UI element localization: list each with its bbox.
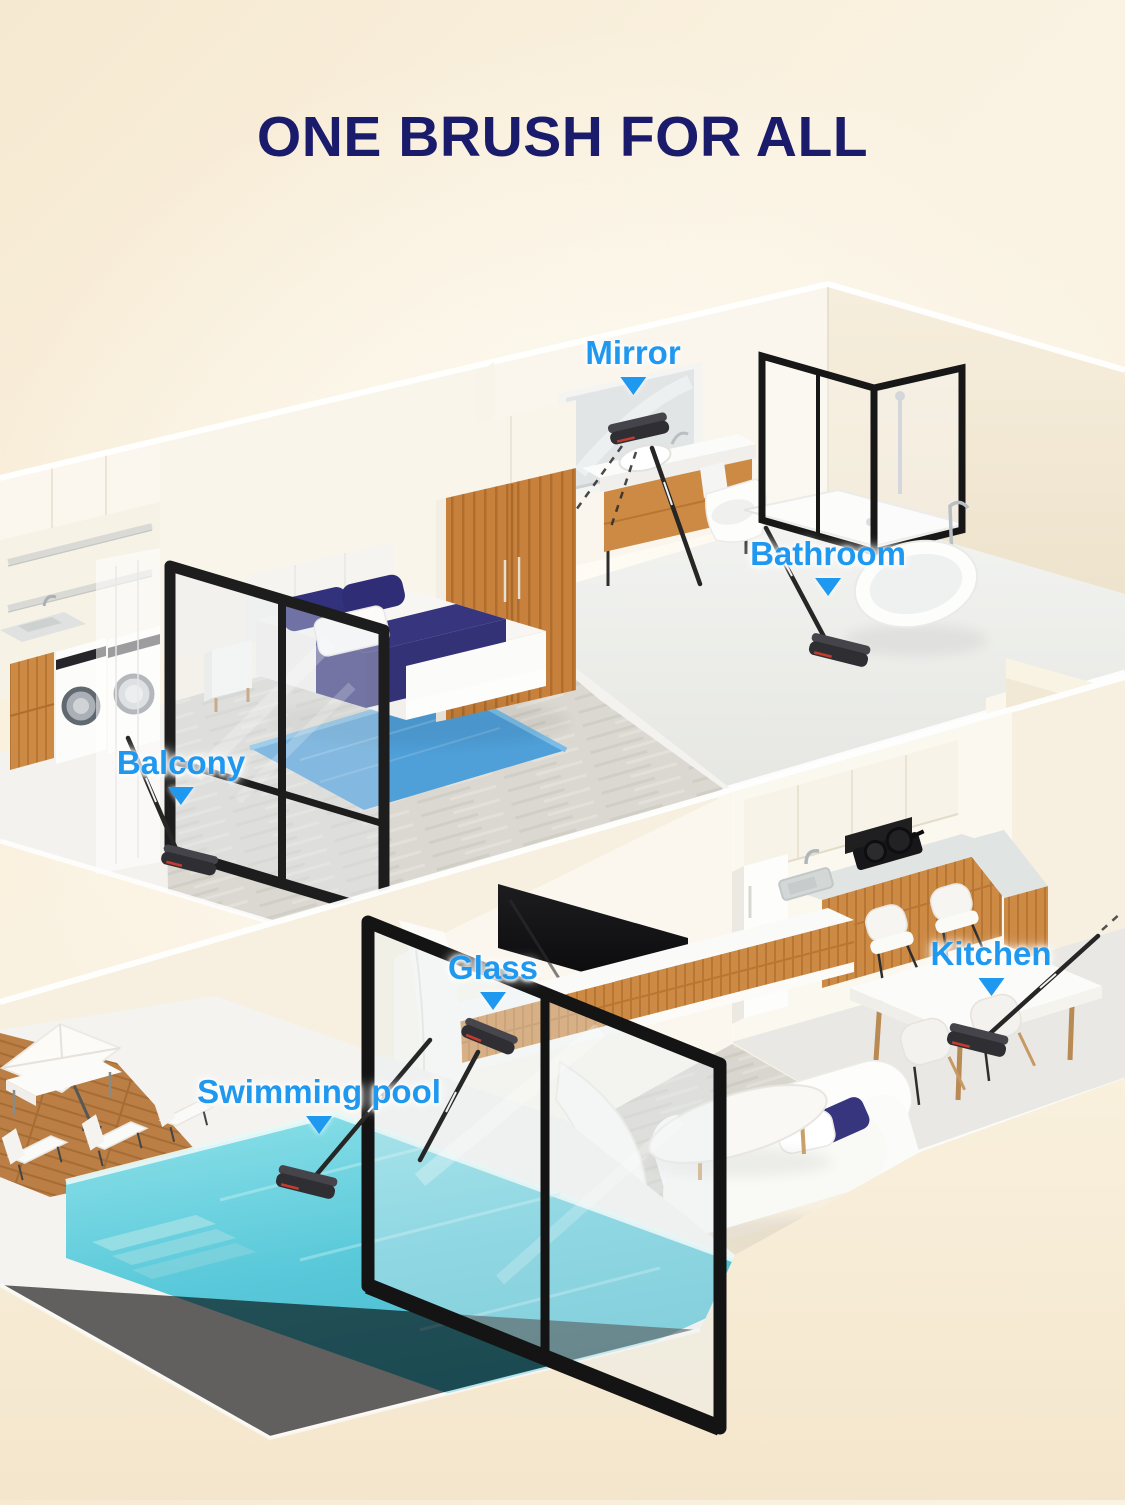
bedroom-curtain <box>96 548 160 874</box>
callout-balcony: Balcony <box>117 746 245 805</box>
arrow-down-icon <box>306 1116 332 1134</box>
callout-bathroom-label: Bathroom <box>750 537 906 572</box>
callout-kitchen-label: Kitchen <box>930 937 1051 972</box>
callout-swimming-pool: Swimming pool <box>197 1075 441 1134</box>
arrow-down-icon <box>978 978 1004 996</box>
callout-mirror-label: Mirror <box>585 336 680 371</box>
arrow-down-icon <box>620 377 646 395</box>
callout-glass: Glass <box>448 951 538 1010</box>
callout-mirror: Mirror <box>585 336 680 395</box>
shower-enclosure <box>744 356 966 552</box>
callout-balcony-label: Balcony <box>117 746 245 781</box>
callout-glass-label: Glass <box>448 951 538 986</box>
callout-kitchen: Kitchen <box>930 937 1051 996</box>
arrow-down-icon <box>168 787 194 805</box>
arrow-down-icon <box>815 578 841 596</box>
callout-bathroom: Bathroom <box>750 537 906 596</box>
callout-swimming-pool-label: Swimming pool <box>197 1075 441 1110</box>
arrow-down-icon <box>480 992 506 1010</box>
